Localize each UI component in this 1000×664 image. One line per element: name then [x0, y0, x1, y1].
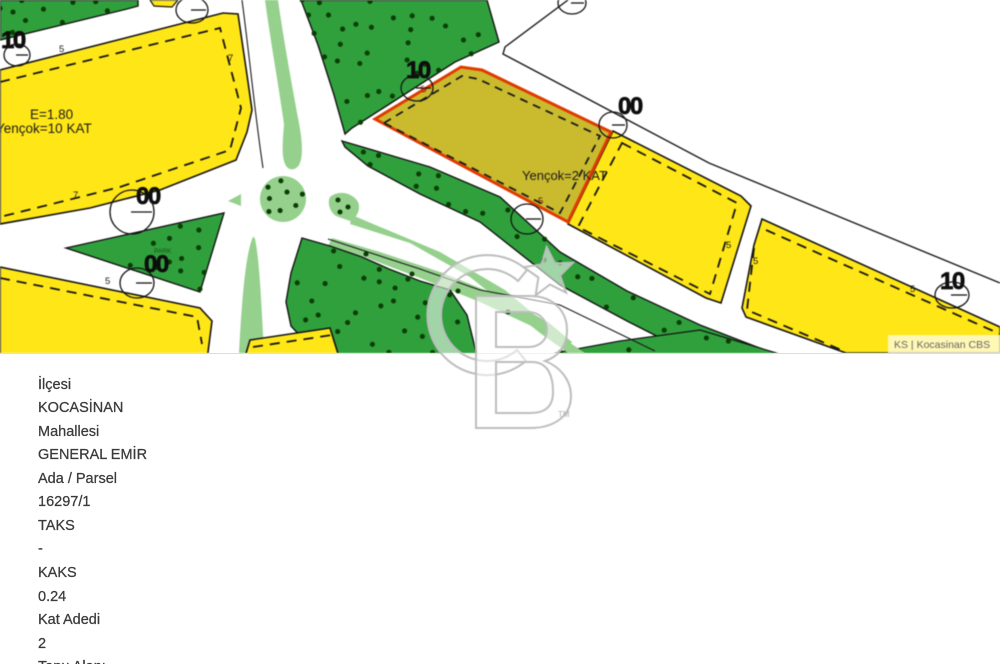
svg-text:TM: TM — [558, 410, 570, 419]
